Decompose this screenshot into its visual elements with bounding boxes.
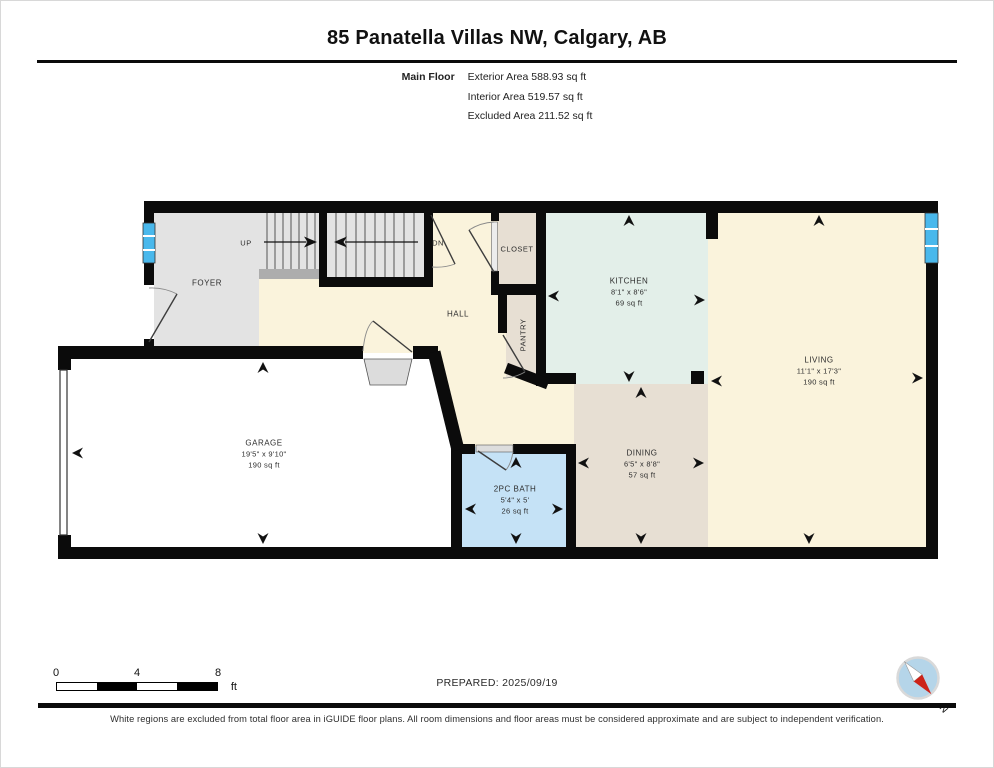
label-garage: GARAGE 19'5" x 9'10" 190 sq ft	[241, 439, 286, 470]
label-stairs-down: DN	[432, 239, 444, 248]
room-dims: 8'1" x 8'6"	[610, 288, 649, 297]
label-dining: DINING 6'5" x 8'8" 57 sq ft	[624, 449, 660, 480]
label-pantry: PANTRY	[519, 319, 528, 352]
label-hall: HALL	[447, 310, 469, 319]
room-name: GARAGE	[241, 439, 286, 448]
disclaimer-text: White regions are excluded from total fl…	[1, 714, 993, 724]
floorplan-page: 85 Panatella Villas NW, Calgary, AB Main…	[0, 0, 994, 768]
window-left	[143, 223, 155, 263]
label-bath: 2PC BATH 5'4" x 5' 26 sq ft	[494, 485, 537, 516]
room-name: HALL	[447, 310, 469, 319]
label-foyer: FOYER	[192, 279, 222, 288]
room-dims: 19'5" x 9'10"	[241, 450, 286, 459]
label-living: LIVING 11'1" x 17'3" 190 sq ft	[797, 356, 841, 387]
room-name: DINING	[624, 449, 660, 458]
room-name: PANTRY	[519, 319, 528, 352]
room-area: 69 sq ft	[610, 299, 649, 308]
room-area: 190 sq ft	[241, 461, 286, 470]
room-dims: 5'4" x 5'	[494, 496, 537, 505]
floor-plan-svg: N	[1, 1, 994, 768]
room-dims: 6'5" x 8'8"	[624, 460, 660, 469]
room-area: 190 sq ft	[797, 378, 841, 387]
wall-bottom	[58, 547, 938, 559]
room-area: 57 sq ft	[624, 471, 660, 480]
label-kitchen: KITCHEN 8'1" x 8'6" 69 sq ft	[610, 277, 649, 308]
room-name: CLOSET	[500, 245, 533, 254]
wall-garage-top	[58, 346, 363, 359]
prepared-date: PREPARED: 2025/09/19	[1, 677, 993, 689]
label-stairs-up: UP	[240, 239, 251, 248]
room-name: FOYER	[192, 279, 222, 288]
room-name: KITCHEN	[610, 277, 649, 286]
room-name: 2PC BATH	[494, 485, 537, 494]
footer-divider	[38, 703, 956, 708]
garage-door	[60, 370, 67, 535]
stair-landing-strip	[259, 269, 319, 279]
room-name: LIVING	[797, 356, 841, 365]
label-closet: CLOSET	[500, 245, 533, 254]
room-dims: 11'1" x 17'3"	[797, 367, 841, 376]
window-right	[925, 213, 938, 263]
room-area: 26 sq ft	[494, 507, 537, 516]
